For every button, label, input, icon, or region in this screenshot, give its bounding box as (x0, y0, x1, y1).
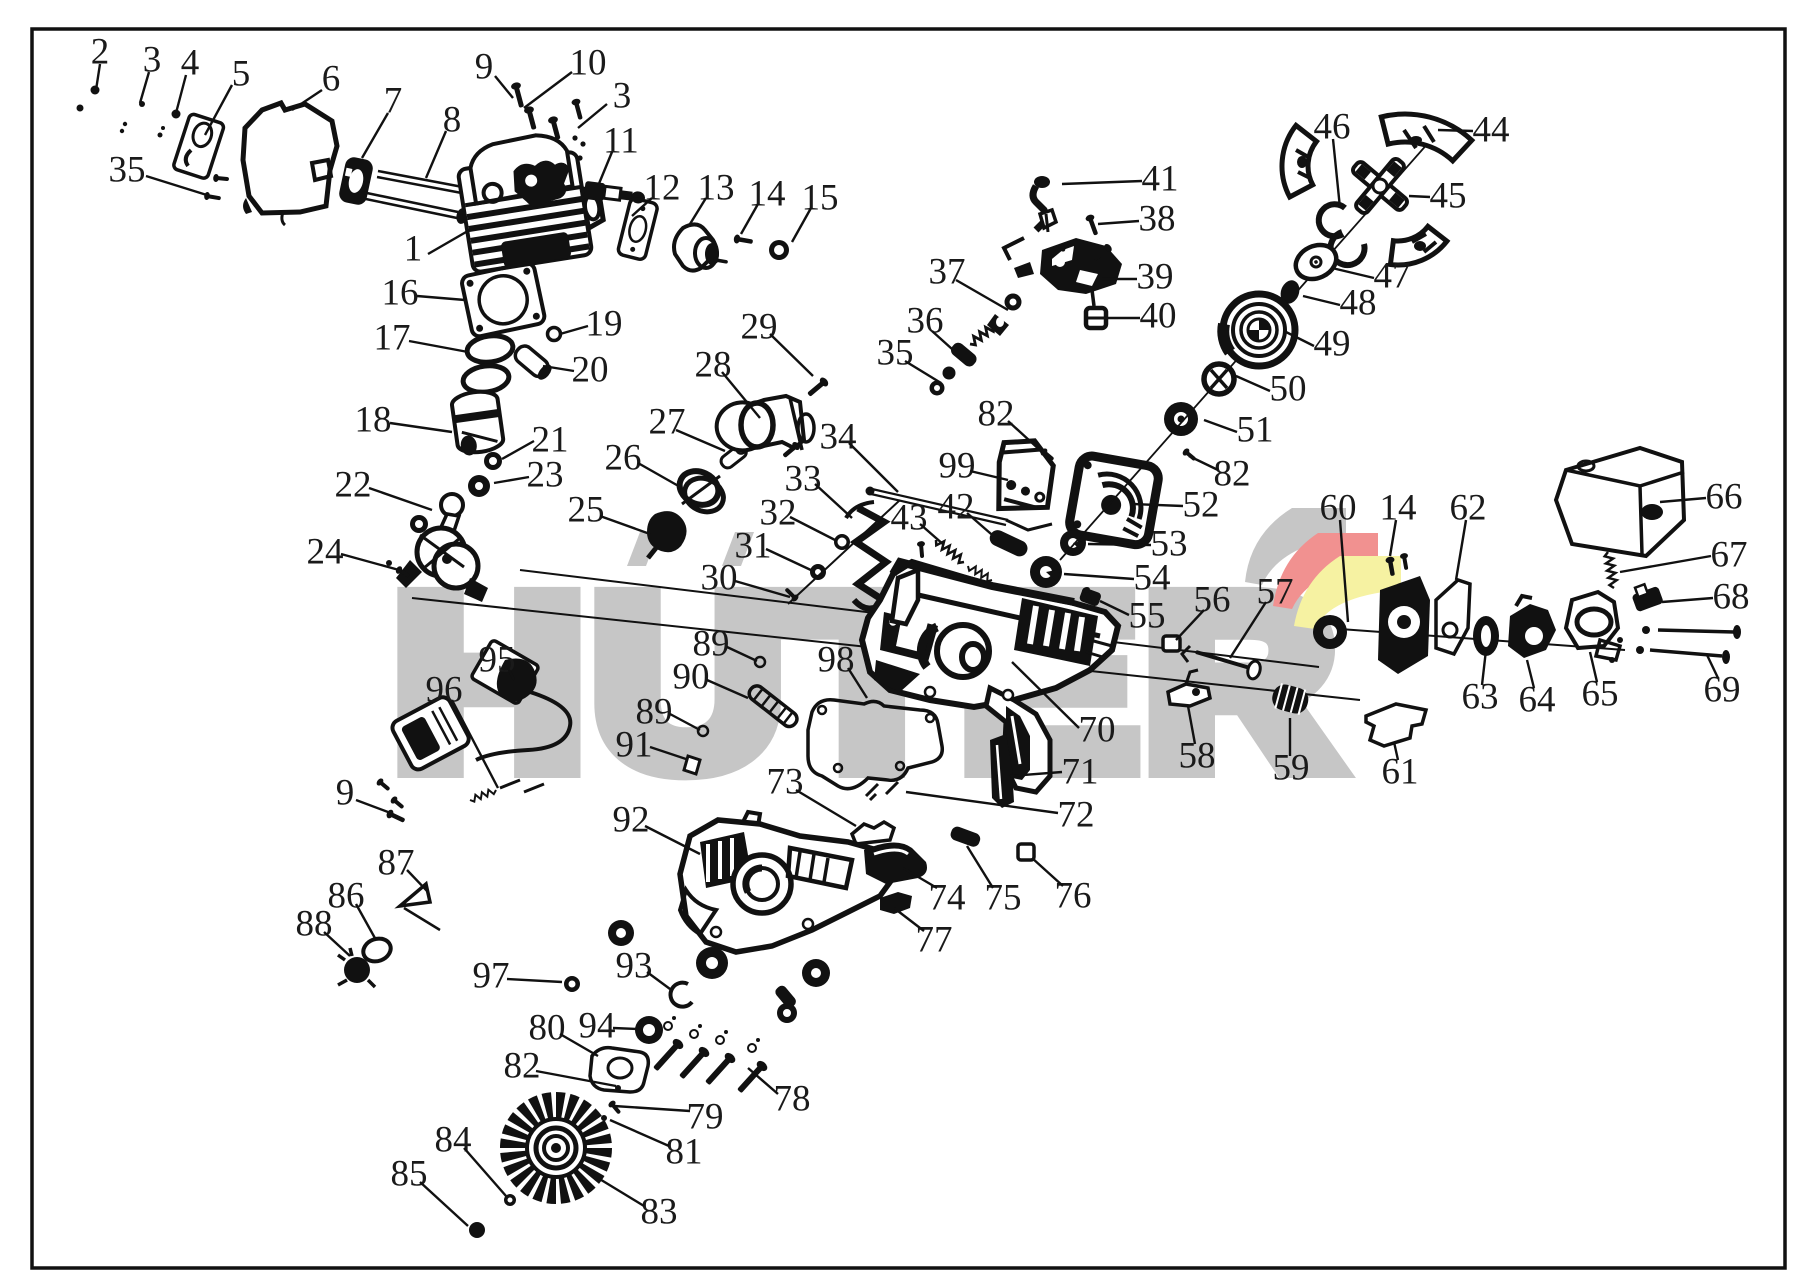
svg-text:33: 33 (785, 459, 822, 500)
svg-text:24: 24 (307, 532, 344, 573)
svg-text:68: 68 (1713, 577, 1750, 618)
svg-text:10: 10 (570, 43, 607, 84)
svg-text:74: 74 (929, 878, 966, 919)
svg-text:23: 23 (527, 455, 564, 496)
svg-text:65: 65 (1582, 674, 1619, 715)
svg-text:39: 39 (1137, 257, 1174, 298)
svg-text:88: 88 (296, 904, 333, 945)
svg-text:48: 48 (1340, 283, 1377, 324)
svg-text:38: 38 (1139, 199, 1176, 240)
svg-text:27: 27 (649, 402, 686, 443)
svg-text:76: 76 (1055, 876, 1092, 917)
svg-text:30: 30 (701, 558, 738, 599)
svg-text:16: 16 (382, 273, 419, 314)
svg-text:82: 82 (504, 1046, 541, 1087)
svg-text:19: 19 (586, 304, 623, 345)
svg-text:26: 26 (605, 438, 642, 479)
svg-text:6: 6 (322, 59, 341, 100)
svg-text:54: 54 (1134, 558, 1171, 599)
svg-text:90: 90 (673, 657, 710, 698)
svg-text:52: 52 (1183, 485, 1220, 526)
svg-text:29: 29 (741, 307, 778, 348)
svg-text:9: 9 (475, 47, 494, 88)
svg-text:49: 49 (1314, 324, 1351, 365)
svg-text:84: 84 (435, 1120, 472, 1161)
svg-text:94: 94 (579, 1006, 616, 1047)
svg-text:55: 55 (1129, 596, 1166, 637)
svg-text:28: 28 (695, 345, 732, 386)
svg-text:4: 4 (181, 43, 200, 84)
svg-text:97: 97 (473, 956, 510, 997)
svg-text:81: 81 (666, 1132, 703, 1173)
svg-text:11: 11 (603, 121, 639, 162)
svg-text:69: 69 (1704, 670, 1741, 711)
svg-text:22: 22 (335, 465, 372, 506)
svg-text:40: 40 (1140, 296, 1177, 337)
svg-text:46: 46 (1314, 107, 1351, 148)
svg-text:3: 3 (143, 40, 162, 81)
svg-text:60: 60 (1320, 488, 1357, 529)
svg-text:35: 35 (877, 333, 914, 374)
svg-text:82: 82 (978, 394, 1015, 435)
svg-text:98: 98 (818, 640, 855, 681)
svg-text:43: 43 (891, 498, 928, 539)
svg-text:42: 42 (938, 487, 975, 528)
svg-text:37: 37 (929, 252, 966, 293)
svg-text:67: 67 (1711, 535, 1748, 576)
svg-text:47: 47 (1374, 256, 1411, 297)
svg-text:73: 73 (767, 762, 804, 803)
svg-text:66: 66 (1706, 477, 1743, 518)
svg-text:63: 63 (1462, 677, 1499, 718)
svg-text:15: 15 (802, 178, 839, 219)
svg-text:83: 83 (641, 1192, 678, 1233)
svg-text:64: 64 (1519, 680, 1556, 721)
svg-text:35: 35 (109, 150, 146, 191)
svg-text:70: 70 (1079, 710, 1116, 751)
svg-text:85: 85 (391, 1154, 428, 1195)
svg-text:34: 34 (820, 417, 857, 458)
svg-text:58: 58 (1179, 736, 1216, 777)
svg-text:14: 14 (1380, 488, 1417, 529)
svg-text:41: 41 (1142, 159, 1179, 200)
svg-text:45: 45 (1430, 176, 1467, 217)
svg-text:3: 3 (613, 76, 632, 117)
svg-text:80: 80 (529, 1008, 566, 1049)
svg-text:99: 99 (939, 446, 976, 487)
svg-text:96: 96 (426, 670, 463, 711)
svg-text:87: 87 (378, 843, 415, 884)
svg-text:20: 20 (572, 350, 609, 391)
svg-text:61: 61 (1382, 752, 1419, 793)
svg-text:51: 51 (1237, 410, 1274, 451)
svg-text:25: 25 (568, 490, 605, 531)
svg-text:44: 44 (1473, 110, 1510, 151)
svg-text:50: 50 (1270, 369, 1307, 410)
svg-text:77: 77 (916, 920, 953, 961)
svg-text:12: 12 (644, 168, 681, 209)
svg-text:91: 91 (616, 725, 653, 766)
svg-text:9: 9 (336, 773, 355, 814)
svg-text:17: 17 (374, 318, 411, 359)
svg-text:14: 14 (749, 174, 786, 215)
svg-text:1: 1 (404, 229, 423, 270)
svg-text:71: 71 (1062, 752, 1099, 793)
svg-text:62: 62 (1450, 488, 1487, 529)
svg-text:92: 92 (613, 800, 650, 841)
svg-text:72: 72 (1058, 795, 1095, 836)
svg-text:18: 18 (355, 400, 392, 441)
svg-text:93: 93 (616, 946, 653, 987)
svg-text:5: 5 (232, 54, 251, 95)
svg-text:78: 78 (774, 1079, 811, 1120)
